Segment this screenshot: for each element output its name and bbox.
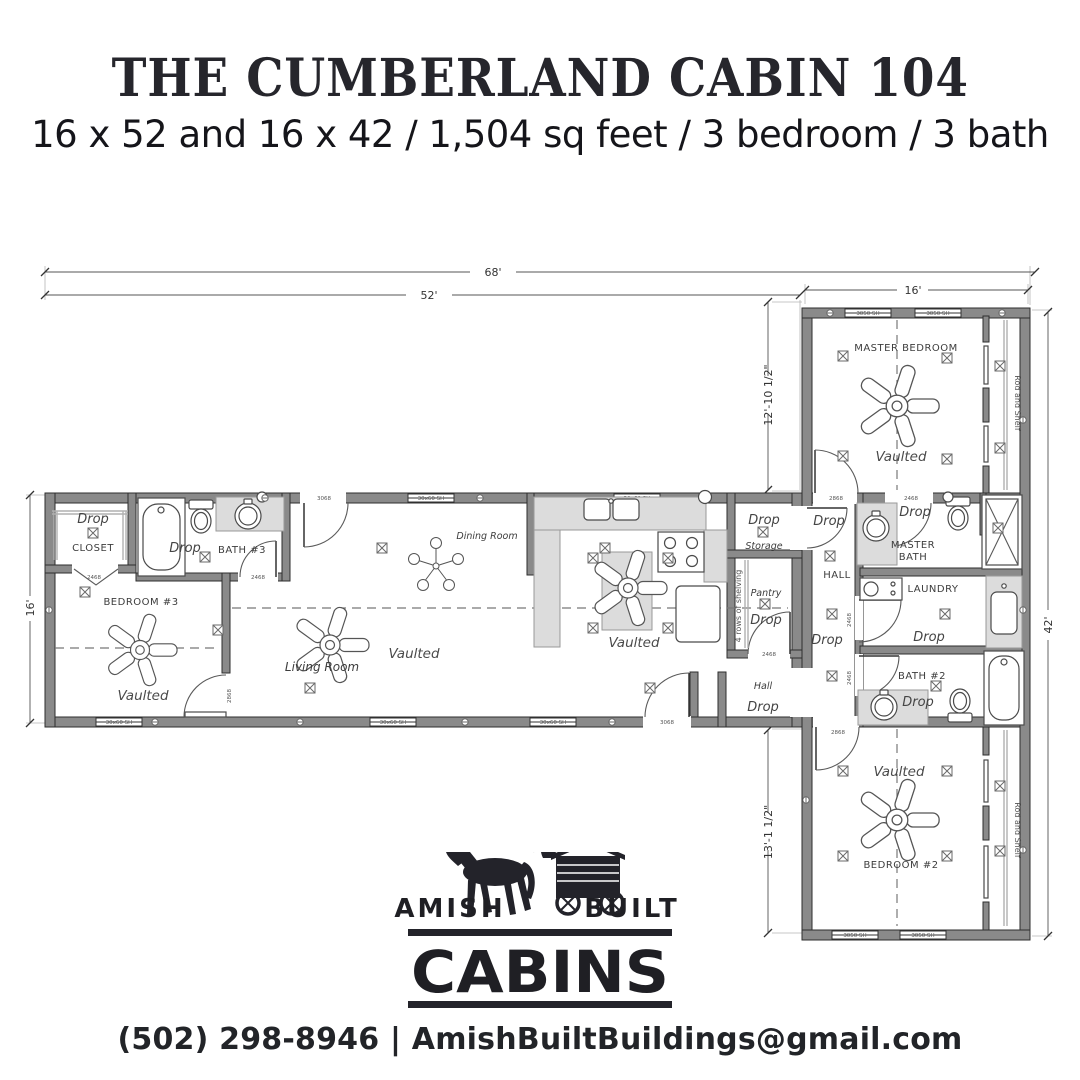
dim-wing-length: 42' [1042,616,1055,633]
label-bedroom3: BEDROOM #3 [103,597,178,608]
label-rod-shelf: Rod and Shelf [1013,802,1022,858]
label-vaulted: Vaulted [875,449,927,465]
door-label: 2468 [87,575,101,581]
label-vaulted: Vaulted [873,764,925,780]
ceiling-fan-icon [106,613,177,687]
label-drop: Drop [899,505,931,520]
label-vaulted: Vaulted [388,646,440,662]
label-dining-room: Dining Room [456,531,517,542]
window-label: 3050 SH [926,311,949,317]
logo-divider-top [408,929,672,936]
kitchen-counter-left [534,530,560,647]
label-hall-wing: HALL [823,570,851,581]
door-label: 2868 [829,496,843,502]
dim-wing-width: 16' [904,284,921,297]
bathtub-icon [984,651,1024,725]
ceiling-fan-icon [859,778,939,862]
stove-icon [658,532,704,572]
window-label: 3050 SH [856,311,879,317]
label-vaulted: Vaulted [117,688,169,704]
bath3-fixtures [138,497,284,576]
label-master-bedroom: MASTER BEDROOM [854,343,958,354]
contact-info: (502) 298-8946 | AmishBuiltBuildings@gma… [0,1022,1080,1057]
door-label: 3068 [317,496,331,502]
window-label: 3050 SH [911,933,934,939]
door-label: 2468 [904,496,918,502]
label-hall-main: Hall [754,681,773,692]
label-master-bath: MASTER [891,540,935,551]
chandelier-icon [409,538,464,591]
dim-wing-lower: 13'-1 1/2" [762,805,775,859]
window-label: 30x60 SH [540,720,567,726]
logo-amish: AMISH [394,894,505,924]
kitchen-counter-right [704,530,727,582]
label-closet: CLOSET [72,543,114,554]
label-shelving: 4 rows of shelving [734,570,743,643]
utility-sink-icon [991,592,1017,634]
ceiling-fixtures [106,364,953,862]
amish-built-cabins-logo: AMISH BUILT CABINS [388,852,692,1012]
door-label: 2468 [251,575,265,581]
label-bath2: BATH #2 [898,671,946,682]
door-label: 2868 [831,730,845,736]
label-rod-shelf: Rod and Shelf [1013,375,1022,431]
dim-main-width: 52' [420,289,437,302]
label-drop: Drop [913,630,945,645]
label-storage: Storage [745,541,782,552]
label-drop: Drop [748,513,780,528]
door-label: 2468 [847,671,853,685]
label-living-room: Living Room [285,660,359,674]
washer-dryer-icon [860,578,902,600]
label-drop: Drop [750,613,782,628]
dim-main-depth: 16' [24,599,37,616]
label-master-bath: BATH [899,552,928,563]
floor-plan: 68' 52' 16' 16' 12'-10 1/2" 13'-1 1/2" 4… [0,250,1080,950]
door-label: 2868 [227,689,233,703]
dim-wing-upper: 12'-10 1/2" [762,364,775,425]
thermostat-icon [943,492,953,502]
toilet-icon [189,500,213,533]
window-label: 30x60 SH [418,496,445,502]
label-drop: Drop [902,695,934,710]
label-bath3: BATH #3 [218,545,266,556]
door-label: 2468 [847,613,853,627]
label-drop: Drop [169,541,201,556]
page-subtitle: 16 x 52 and 16 x 42 / 1,504 sq feet / 3 … [0,113,1080,156]
logo-divider-bottom [408,1001,672,1008]
dim-overall-width: 68' [484,266,501,279]
page-title: THE CUMBERLAND CABIN 104 [111,52,968,107]
smoke-detector-icon [699,491,712,504]
door-label: 3068 [660,720,674,726]
toilet-icon [948,689,972,722]
ceiling-fan-icon [859,364,939,448]
door-label: 2468 [762,652,776,658]
label-vaulted: Vaulted [608,635,660,651]
label-bedroom2: BEDROOM #2 [863,860,938,871]
window-label: 30x60 SH [106,720,133,726]
header: THE CUMBERLAND CABIN 104 16 x 52 and 16 … [0,52,1080,156]
fridge-icon [676,586,720,642]
label-laundry: LAUNDRY [907,584,958,595]
label-pantry: Pantry [751,588,782,599]
window-label: 30x60 SH [380,720,407,726]
label-drop: Drop [811,633,843,648]
label-drop: Drop [77,512,109,527]
label-drop: Drop [747,700,779,715]
window-label: 3050 SH [843,933,866,939]
logo-built: BUILT [584,894,680,924]
bathtub-icon [138,498,185,576]
label-drop: Drop [813,514,845,529]
logo-cabins: CABINS [411,938,669,1006]
